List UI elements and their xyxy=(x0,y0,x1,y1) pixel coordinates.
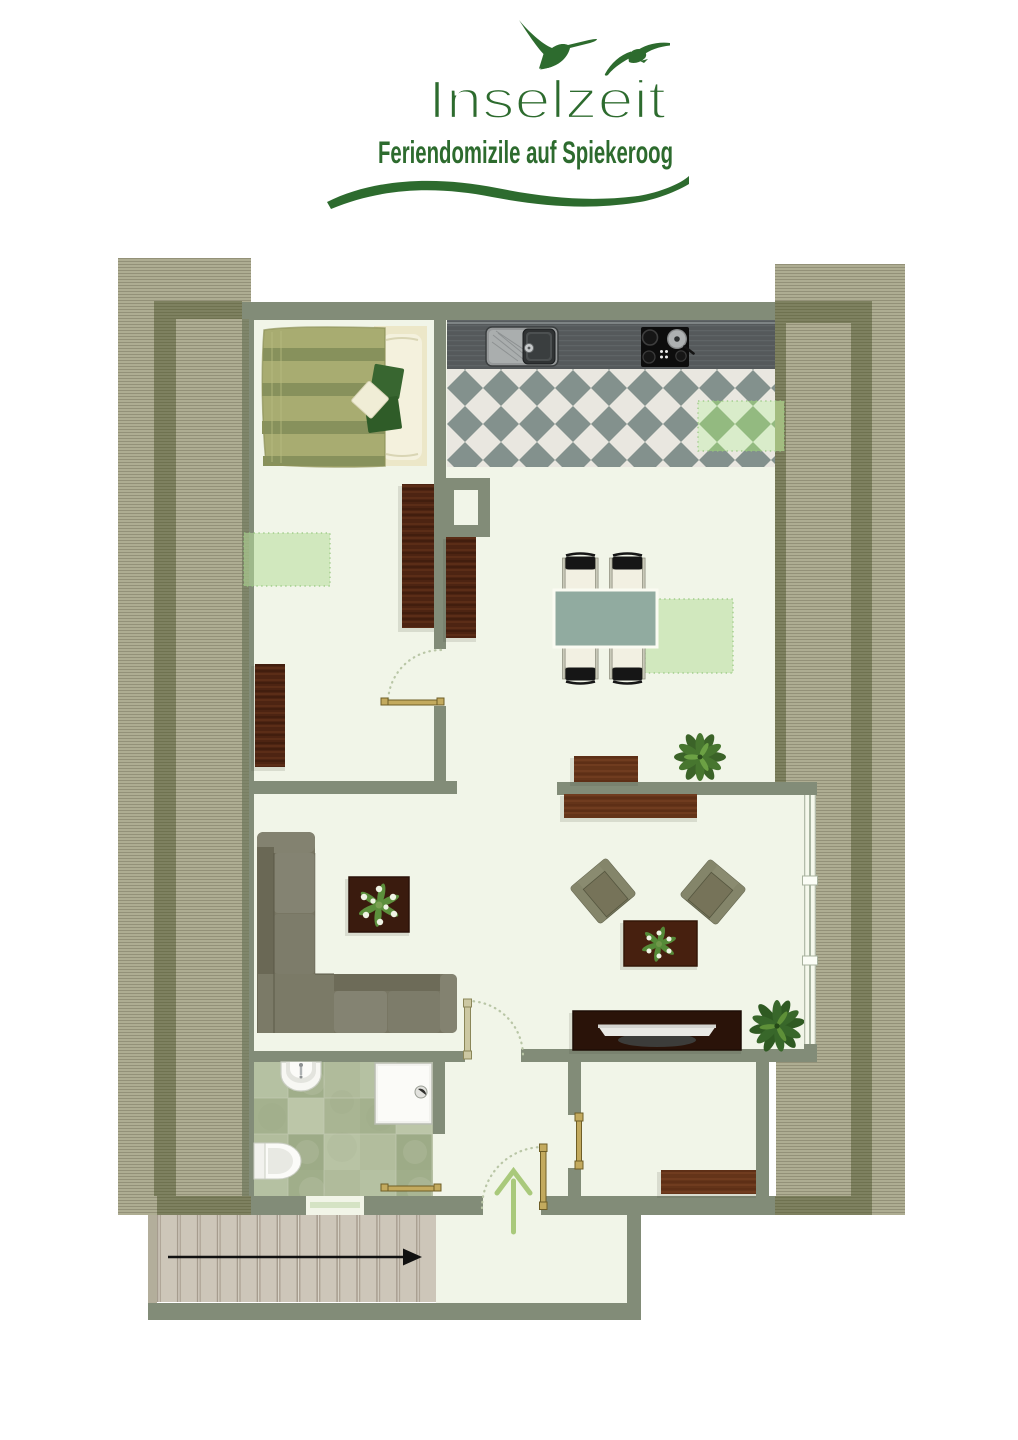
svg-text:Inselzeit: Inselzeit xyxy=(428,70,666,130)
svg-text:Feriendomizile auf Spiekeroog: Feriendomizile auf Spiekeroog xyxy=(378,134,673,170)
